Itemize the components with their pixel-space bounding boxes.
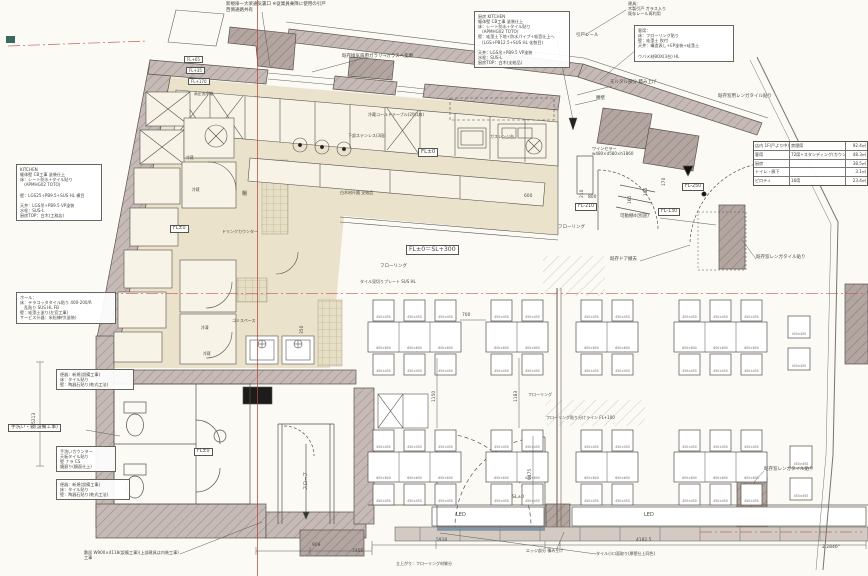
spec-table-row: 客席72席+スタンディング(カウンター含12席)48.3㎡ xyxy=(754,150,867,159)
table-size-label: 450×450 xyxy=(744,445,758,449)
dim-165: 165 xyxy=(628,196,634,204)
table-size-label: 450×450 xyxy=(792,332,806,336)
label-pressure-washer: 高圧洗浄機 xyxy=(194,92,213,97)
label-reito: 冷凍 xyxy=(201,326,209,331)
label-mortar: モルタル部分 積み上げ xyxy=(610,80,656,86)
table-size-label: 450×450 xyxy=(407,499,421,503)
label-tile-plate: タイル見切りプレート SUS HL xyxy=(360,279,416,284)
label-brick-top: 既存窓用レンガタイル貼り xyxy=(718,94,772,100)
table-size-label: 450×450 xyxy=(744,499,758,503)
label-under-stainless: 下部ステンレス(3段) xyxy=(348,133,386,138)
label-fl-plus-65: FL+65 xyxy=(184,56,203,63)
dim-170: 170 xyxy=(662,178,668,186)
table-size-label: 450×450 xyxy=(682,315,696,319)
label-movable-shelf: 可動棚4(別途) xyxy=(620,214,649,220)
label-fl-plus-35: FL+35 xyxy=(186,67,205,74)
table-size-label: 450×450 xyxy=(682,499,696,503)
table-size-label: 450×450 xyxy=(744,369,758,373)
note-hall-spec: ホール： 床：テラコッタタイル貼り 400-200/R 乱貼り SUS HL F… xyxy=(16,292,116,324)
label-sl0: SL±0 xyxy=(512,495,524,501)
label-reizo-3: 冷蔵 xyxy=(203,352,211,357)
label-brick-bottom: 既存窓レンガタイル貼り xyxy=(764,467,814,473)
table-size-label: 450×450 xyxy=(494,369,508,373)
table-size-label: 600×600 xyxy=(615,346,629,350)
red-dash-top-left xyxy=(8,41,148,46)
floor-plan-sheet: 600×600450×450450×450600×600450×450450×4… xyxy=(0,0,868,576)
table-size-label: 450×450 xyxy=(713,445,727,449)
table-size-label: 450×450 xyxy=(376,499,390,503)
dim-700: 700 xyxy=(462,313,470,319)
label-reizo-2: 冷蔵 xyxy=(192,188,200,193)
table-size-label: 600×600 xyxy=(376,346,390,350)
table-size-label: 600×600 xyxy=(494,346,508,350)
table-size-label: 450×450 xyxy=(407,445,421,449)
table-size-label: 450×450 xyxy=(376,369,390,373)
label-angle: 2.2846° xyxy=(822,545,840,551)
label-fl0-sl300: FL±0＝SL+300 xyxy=(406,245,459,255)
note-seating-spec: 客席： 床：フローリング貼り 壁：珪藻土 吹付 天井：構造表し+EP塗装+珪藻土… xyxy=(634,25,734,62)
table-size-label: 600×600 xyxy=(407,476,421,480)
table-size-label: 450×450 xyxy=(525,369,539,373)
label-cold-table: 冷蔵コールドテーブル(2列1扉) xyxy=(368,112,424,117)
label-fl-minus-130: FL-130 xyxy=(658,208,680,216)
table-size-label: 600×600 xyxy=(525,346,539,350)
label-led-2: LED xyxy=(644,512,654,518)
label-fl0-toilet: FL±0 xyxy=(194,448,213,456)
label-led-1: LED xyxy=(456,512,466,518)
area-spec-table: 店内 1F(戸より中)禁煙席92.4㎡客席72席+スタンディング(カウンター含1… xyxy=(753,141,868,186)
table-size-label: 450×450 xyxy=(438,369,452,373)
label-fl-minus-210: FL-210 xyxy=(575,203,597,211)
table-size-label: 450×450 xyxy=(525,315,539,319)
spec-table-row: 店内 1F(戸より中)禁煙席92.4㎡ xyxy=(754,142,867,150)
label-door-removed: 既存ドア撤去 xyxy=(610,257,637,263)
note-glass-change: 既存換気扇用ガラリ→ガラスへ変更 xyxy=(342,54,413,60)
table-size-label: 600×600 xyxy=(407,346,421,350)
table-size-label: 450×450 xyxy=(794,462,808,466)
spec-table-row: 厨房38.5㎡ xyxy=(754,159,867,168)
label-edge-note: エッジ部分 積み上げ xyxy=(526,548,563,553)
note-toilet-spec-2: 便器：新規(設備工事) 床：タイル貼り 壁：陶器石貼り(乾式工法) xyxy=(56,479,130,500)
table-size-label: 450×450 xyxy=(407,315,421,319)
table-size-label: 450×450 xyxy=(407,369,421,373)
label-flooring-right: フローリング xyxy=(558,225,585,231)
label-gomi-space: ゴミスペース xyxy=(232,318,256,323)
table-size-label: 600×600 xyxy=(682,346,696,350)
dim-1183: 1183 xyxy=(514,391,520,402)
dim-7455: 7455 xyxy=(352,549,363,555)
dim-1150: 1150 xyxy=(432,391,438,402)
note-kitchen-spec-left: KITCHEN 躯体壁 CB工事 塗装仕上 床：シート防水+タイル貼り (APM… xyxy=(16,164,102,221)
label-fl-minus-250: FL-250 xyxy=(682,183,704,191)
table-size-label: 600×600 xyxy=(494,476,508,480)
table-size-label: 450×450 xyxy=(744,315,758,319)
dim-185: 185 xyxy=(644,188,650,196)
table-size-label: 450×450 xyxy=(584,369,598,373)
table-size-label: 600×600 xyxy=(376,476,390,480)
spec-table-row: ピロティ16席23.4㎡ xyxy=(754,176,867,185)
wine-cellar-unit xyxy=(577,156,593,194)
note-toilet-spec-1: 便器：新規(設備工事) 床：タイル貼り 壁：陶器石貼り(乾式工法) xyxy=(56,369,134,390)
label-flooring-line: フローリング貼り分けライン FL+100 xyxy=(546,415,615,420)
table-size-label: 600×600 xyxy=(744,346,758,350)
table-size-label: 450×450 xyxy=(682,445,696,449)
table-size-label: 450×450 xyxy=(438,499,452,503)
table-size-label: 450×450 xyxy=(525,499,539,503)
spec-table-row: トイレ・廊下3.1㎡ xyxy=(754,167,867,176)
label-fl0-kitchen: FL±0 xyxy=(418,148,438,157)
dim-41825: 4182.5 xyxy=(636,538,651,544)
label-fl-plus-170: FL+170 xyxy=(188,78,210,85)
dim-5918: 5918 xyxy=(436,538,447,544)
table-size-label: 450×450 xyxy=(584,499,598,503)
dim-908: 908 xyxy=(312,543,320,549)
table-size-label: 600×600 xyxy=(682,476,696,480)
note-door-right: 建具： 木製引戸 ガラス入り 既存レール再利用 xyxy=(628,1,666,16)
table-size-label: 450×450 xyxy=(584,445,598,449)
table-size-label: 450×450 xyxy=(376,445,390,449)
dim-9475: 9475 xyxy=(528,469,534,480)
toilet-rooms xyxy=(114,384,250,504)
table-size-label: 450×450 xyxy=(438,315,452,319)
table-size-label: 450×450 xyxy=(376,315,390,319)
label-gas-range: ガスレンジ台 xyxy=(490,134,514,139)
table-size-label: 450×450 xyxy=(438,445,452,449)
survey-mark xyxy=(6,36,15,43)
table-size-label: 600×600 xyxy=(615,476,629,480)
table-size-label: 600×600 xyxy=(438,346,452,350)
label-shelf: 棚 xyxy=(242,191,247,197)
table-size-label: 450×450 xyxy=(713,499,727,503)
label-flooring-mid: フローリング xyxy=(380,264,407,270)
table-size-label: 450×450 xyxy=(713,369,727,373)
dim-600: 600 xyxy=(524,194,532,200)
table-size-label: 450×450 xyxy=(792,364,806,368)
table-size-label: 450×450 xyxy=(615,315,629,319)
label-reizo-1: 冷蔵 xyxy=(186,156,194,161)
dim-350: 350 xyxy=(300,326,306,334)
table-size-label: 450×450 xyxy=(494,315,508,319)
label-flooring-hatch: フローリング xyxy=(528,392,552,397)
label-koshikabe: 腰壁 xyxy=(596,96,605,102)
table-size-label: 600×600 xyxy=(713,346,727,350)
label-fl0-lkitchen: FL±0 xyxy=(170,225,189,233)
label-tile-edge-note: タイル小口面取り(厚壁仕上同色) xyxy=(596,551,655,556)
table-size-label: 450×450 xyxy=(615,369,629,373)
dim-5213: 5213 xyxy=(32,413,38,424)
table-size-label: 450×450 xyxy=(494,445,508,449)
table-size-label: 600×600 xyxy=(584,346,598,350)
label-drink-counter: ドリンクカウンター xyxy=(222,229,258,234)
label-wine-cellar: ワインセラー w480×d580×h1860 xyxy=(592,146,633,156)
table-size-label: 450×450 xyxy=(794,494,808,498)
table-size-label: 600×600 xyxy=(584,476,598,480)
note-hand-counter: 手洗いカウンター 天板タイル貼り 壁 ナラ CS 鏡廻り(鏡面仕上) xyxy=(56,446,116,472)
label-rise-note: 立上がり：フローリング材質分 xyxy=(396,561,452,566)
table-size-label: 450×450 xyxy=(682,369,696,373)
table-size-label: 600×600 xyxy=(438,476,452,480)
note-kitchen-spec-top: 厨房 KITCHEN 躯体壁 CB工事 塗装仕上 床：シート防水+タイル貼り (… xyxy=(474,11,570,68)
dim-800: 800 xyxy=(588,195,596,201)
label-brick-mid: 既存窓レンガタイル貼り xyxy=(756,255,806,261)
table-size-label: 450×450 xyxy=(713,315,727,319)
table-size-label: 450×450 xyxy=(494,499,508,503)
table-size-label: 450×450 xyxy=(615,499,629,503)
note-sill: 敷居 W900×4118(設備工事)(上部建具は内装工事) 工事 xyxy=(84,550,224,560)
floor-plan-drawing: 600×600450×450450×450600×600450×450450×4… xyxy=(0,0,868,576)
note-hand-wash: 手洗い・鏡(設備工事) xyxy=(8,424,61,432)
dim-210: 210 xyxy=(580,190,586,198)
table-size-label: 450×450 xyxy=(525,445,539,449)
note-top-door: 新規扉一大梁通気裏口 ※従業員乗降に使用の引戸 西側通路共有 xyxy=(226,2,436,13)
table-size-label: 450×450 xyxy=(615,445,629,449)
table-size-label: 600×600 xyxy=(713,476,727,480)
label-slope: スロープ xyxy=(304,472,310,490)
table-size-label: 450×450 xyxy=(584,315,598,319)
label-hikido-rail: 引戸レール xyxy=(576,33,599,39)
label-shiraki: 白木材什器 支給品 xyxy=(340,190,373,195)
